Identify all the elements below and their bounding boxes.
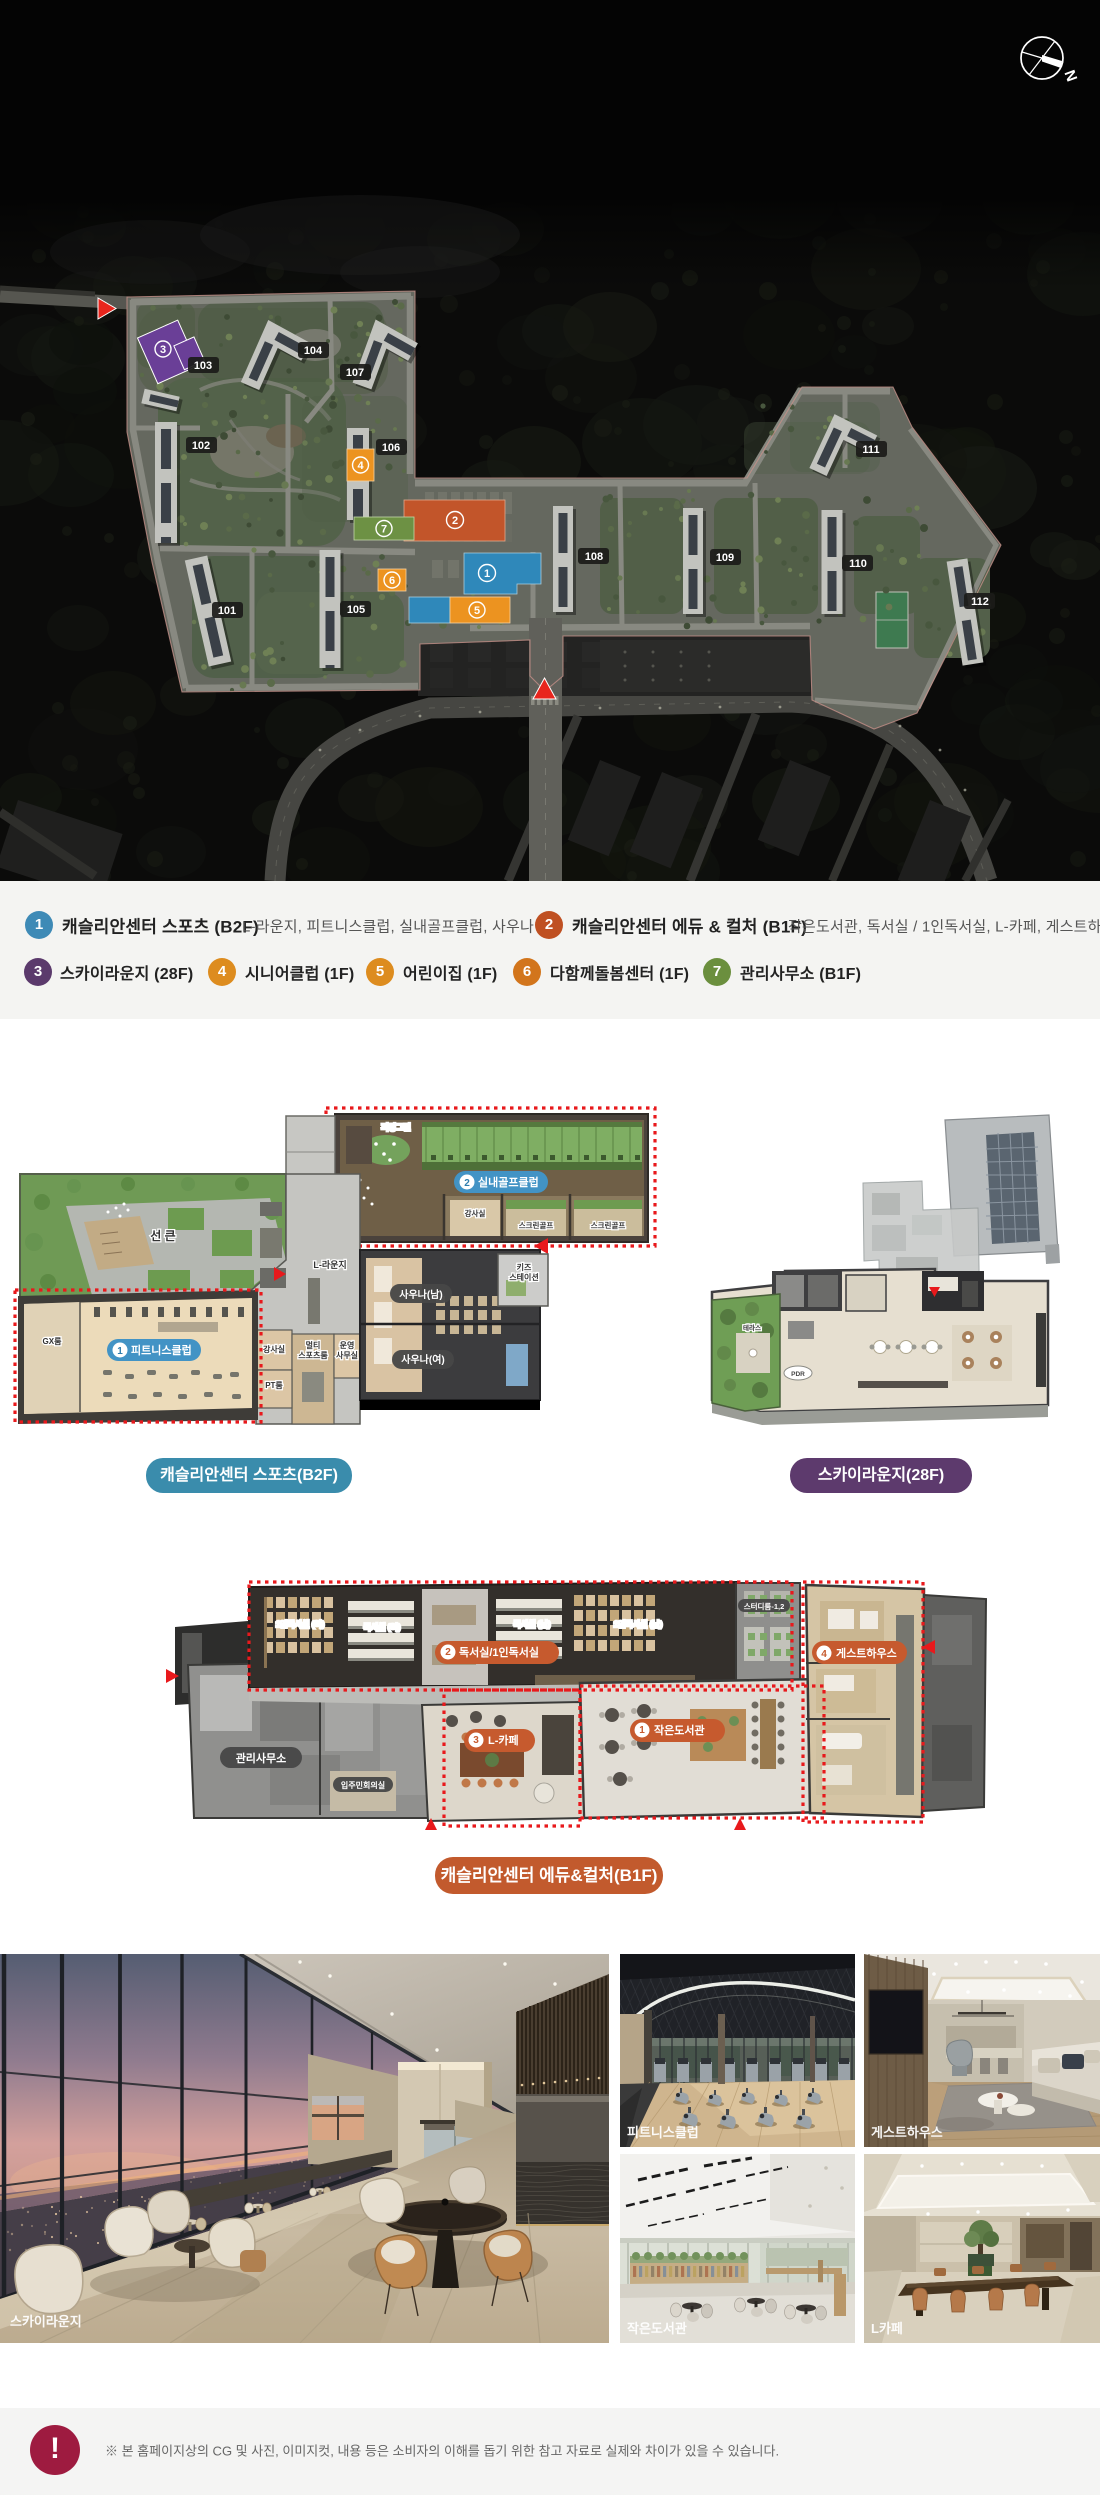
svg-text:멀티: 멀티 <box>306 1340 321 1350</box>
svg-text:독서실/1인독서실: 독서실/1인독서실 <box>459 1645 539 1659</box>
svg-text:게스트하우스: 게스트하우스 <box>836 1646 897 1660</box>
svg-text:4: 4 <box>821 1649 827 1660</box>
svg-text:4: 4 <box>357 460 364 472</box>
svg-text:1인독서실 (여): 1인독서실 (여) <box>276 1619 325 1629</box>
svg-text:운영: 운영 <box>340 1340 355 1350</box>
svg-text:5: 5 <box>474 605 480 617</box>
svg-text:독서실 (남): 독서실 (남) <box>514 1619 551 1629</box>
svg-text:스터디룸-1,2: 스터디룸-1,2 <box>744 1601 785 1611</box>
svg-text:108: 108 <box>585 551 603 563</box>
svg-text:PT룸: PT룸 <box>265 1380 283 1390</box>
svg-text:2: 2 <box>452 515 458 527</box>
svg-text:선 큰: 선 큰 <box>150 1228 175 1243</box>
svg-text:스포츠룸: 스포츠룸 <box>298 1350 328 1360</box>
svg-text:키즈: 키즈 <box>517 1262 532 1272</box>
svg-text:1인독서실 (남): 1인독서실 (남) <box>614 1619 663 1629</box>
svg-text:2: 2 <box>464 1178 470 1189</box>
svg-text:사무실: 사무실 <box>336 1350 358 1360</box>
svg-text:102: 102 <box>192 440 210 452</box>
svg-text:스카이라운지: 스카이라운지 <box>10 2314 82 2329</box>
svg-text:사우나(남): 사우나(남) <box>399 1288 442 1301</box>
svg-text:110: 110 <box>849 558 867 570</box>
svg-text:L카페: L카페 <box>871 2321 903 2336</box>
svg-text:7: 7 <box>381 524 387 536</box>
svg-text:101: 101 <box>218 605 236 617</box>
svg-text:강사실: 강사실 <box>263 1344 285 1354</box>
svg-text:사우나(여): 사우나(여) <box>401 1353 444 1366</box>
svg-text:3: 3 <box>160 344 166 356</box>
svg-text:111: 111 <box>862 444 879 456</box>
svg-text:게스트하우스: 게스트하우스 <box>871 2125 943 2140</box>
svg-text:103: 103 <box>194 360 212 372</box>
svg-text:PDR: PDR <box>791 1371 805 1378</box>
svg-text:106: 106 <box>382 442 400 454</box>
svg-text:피트니스클럽: 피트니스클럽 <box>131 1343 192 1357</box>
svg-text:스크린골프: 스크린골프 <box>591 1220 626 1230</box>
svg-text:독서실 (여): 독서실 (여) <box>364 1622 401 1632</box>
svg-text:105: 105 <box>347 604 365 616</box>
svg-text:강사실: 강사실 <box>465 1208 486 1218</box>
svg-text:피트니스클럽: 피트니스클럽 <box>627 2125 699 2140</box>
svg-text:1: 1 <box>484 568 490 580</box>
svg-text:실내골프클럽: 실내골프클럽 <box>478 1175 539 1189</box>
svg-text:2: 2 <box>445 1647 451 1658</box>
svg-text:테라스: 테라스 <box>743 1323 761 1332</box>
svg-text:6: 6 <box>389 575 395 587</box>
svg-text:L-카페: L-카페 <box>488 1733 519 1747</box>
svg-text:L-라운지: L-라운지 <box>313 1259 346 1270</box>
svg-text:GX룸: GX룸 <box>43 1336 63 1346</box>
svg-text:작은도서관: 작은도서관 <box>627 2321 687 2336</box>
svg-text:1: 1 <box>639 1725 645 1736</box>
svg-text:스크린골프: 스크린골프 <box>519 1220 554 1230</box>
svg-text:109: 109 <box>716 552 734 564</box>
svg-text:관리사무소: 관리사무소 <box>236 1751 287 1765</box>
svg-text:107: 107 <box>346 367 364 379</box>
svg-text:작은도서관: 작은도서관 <box>654 1723 705 1737</box>
svg-text:1: 1 <box>117 1346 123 1357</box>
svg-text:퍼팅그린: 퍼팅그린 <box>381 1122 410 1132</box>
svg-text:3: 3 <box>473 1735 479 1746</box>
svg-text:입주민회의실: 입주민회의실 <box>341 1780 385 1790</box>
svg-text:104: 104 <box>304 345 323 357</box>
svg-text:스테이션: 스테이션 <box>509 1272 538 1282</box>
svg-text:112: 112 <box>971 596 989 608</box>
